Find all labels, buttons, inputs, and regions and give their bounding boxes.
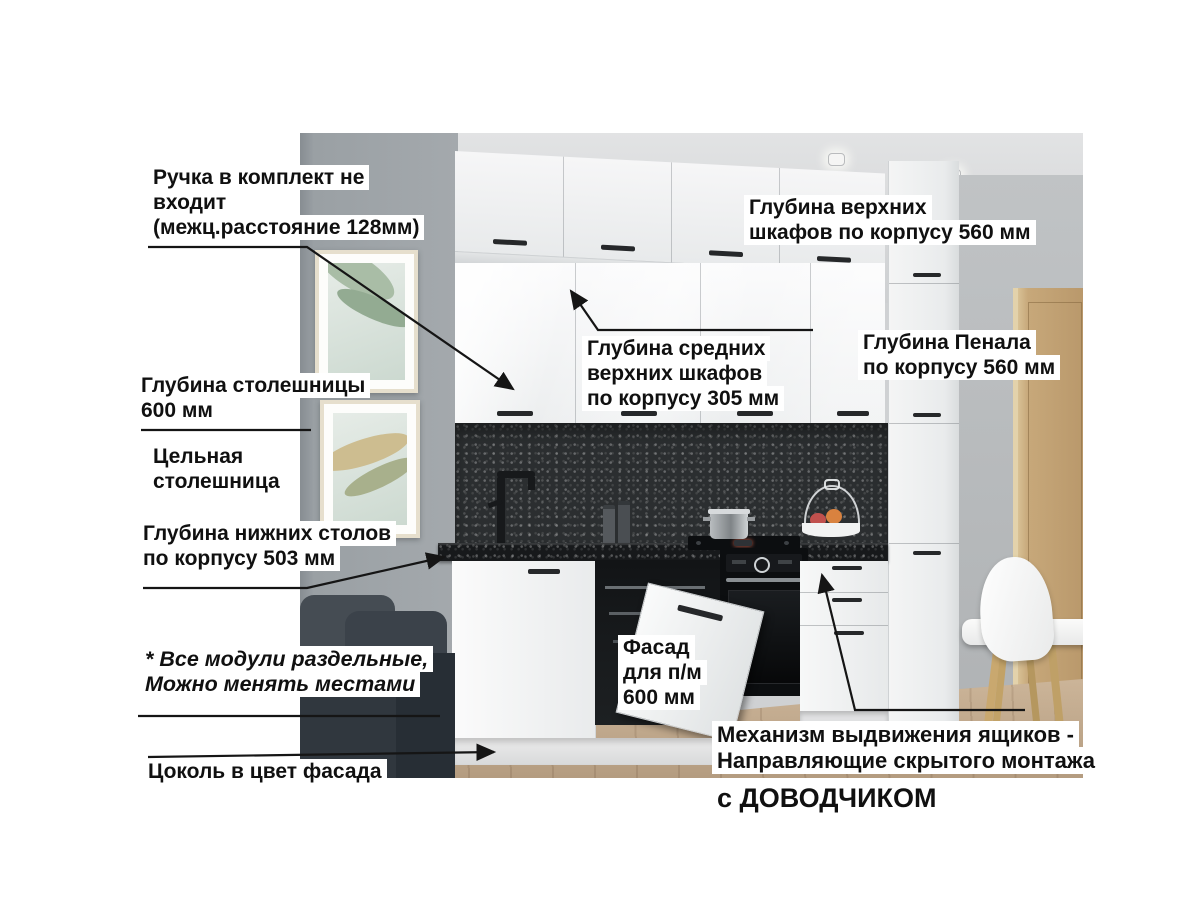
cabinet-handle [817,256,851,263]
spice-jar [603,505,615,545]
cabinet-handle [601,245,635,252]
sink-cabinet [452,561,596,738]
label-solid-countertop: Цельная столешница [148,445,285,495]
cabinet-handle [737,411,773,416]
label-middle-depth-text: Глубина средних верхних шкафов по корпус… [582,336,784,411]
label-drawer-mechanism: Механизм выдвижения ящиков - Направляющи… [712,722,1100,774]
fruit-bowl [802,483,862,539]
label-lower-depth-text: Глубина нижних столов по корпусу 503 мм [138,521,396,571]
plinth-left [452,738,722,765]
label-dishwasher-facade: Фасад для п/м 600 мм [618,636,707,710]
drawer-handle [834,631,864,635]
cabinet-handle [528,569,560,574]
palm-art-2 [333,413,407,525]
label-countertop-depth: Глубина столешницы 600 мм [136,374,370,424]
annotated-kitchen-diagram: Ручка в комплект не входит (межц.расстоя… [0,0,1200,900]
palm-art-1 [328,263,405,380]
picture-frame-top [315,250,418,393]
spice-jar [618,501,630,545]
cabinet-handle [493,239,527,246]
cabinet-handle [677,605,723,622]
label-penal-depth-text: Глубина Пенала по корпусу 560 мм [858,330,1060,380]
label-handle-note: Ручка в комплект не входит (межц.расстоя… [148,166,424,240]
cooking-pot [706,505,752,541]
label-upper-depth: Глубина верхних шкафов по корпусу 560 мм [744,196,1036,246]
drawer-unit [800,561,888,711]
label-plinth-note-text: Цоколь в цвет фасада [143,759,387,784]
label-modules-note-text: * Все модули раздельные, Можно менять ме… [140,646,433,697]
cabinet-handle [913,551,941,555]
label-plinth-note: Цоколь в цвет фасада [143,760,387,785]
label-soft-close: с ДОВОДЧИКОМ [712,783,941,815]
cabinet-handle [837,411,869,416]
ceiling-spotlight-1 [828,153,845,166]
label-drawer-mechanism-text: Механизм выдвижения ящиков - Направляющи… [712,721,1100,774]
countertop [438,543,888,561]
label-handle-note-text: Ручка в комплект не входит (межц.расстоя… [148,165,424,240]
label-dishwasher-facade-text: Фасад для п/м 600 мм [618,635,707,710]
cabinet-handle [913,413,941,417]
label-countertop-depth-text: Глубина столешницы 600 мм [136,373,370,423]
label-soft-close-text: с ДОВОДЧИКОМ [712,782,941,814]
cabinet-handle [709,250,743,257]
cabinet-handle [621,411,657,416]
faucet [490,471,550,551]
cabinet-handle [497,411,533,416]
label-lower-depth: Глубина нижних столов по корпусу 503 мм [138,522,396,572]
drawer-handle [832,566,862,570]
drawer-handle [832,598,862,602]
label-modules-note: * Все модули раздельные, Можно менять ме… [140,647,433,698]
label-upper-depth-text: Глубина верхних шкафов по корпусу 560 мм [744,195,1036,245]
tall-cabinet-penal [888,161,959,733]
label-penal-depth: Глубина Пенала по корпусу 560 мм [858,331,1060,381]
cabinet-handle [913,273,941,277]
label-solid-countertop-text: Цельная столешница [148,444,285,494]
label-middle-depth: Глубина средних верхних шкафов по корпус… [582,337,784,411]
